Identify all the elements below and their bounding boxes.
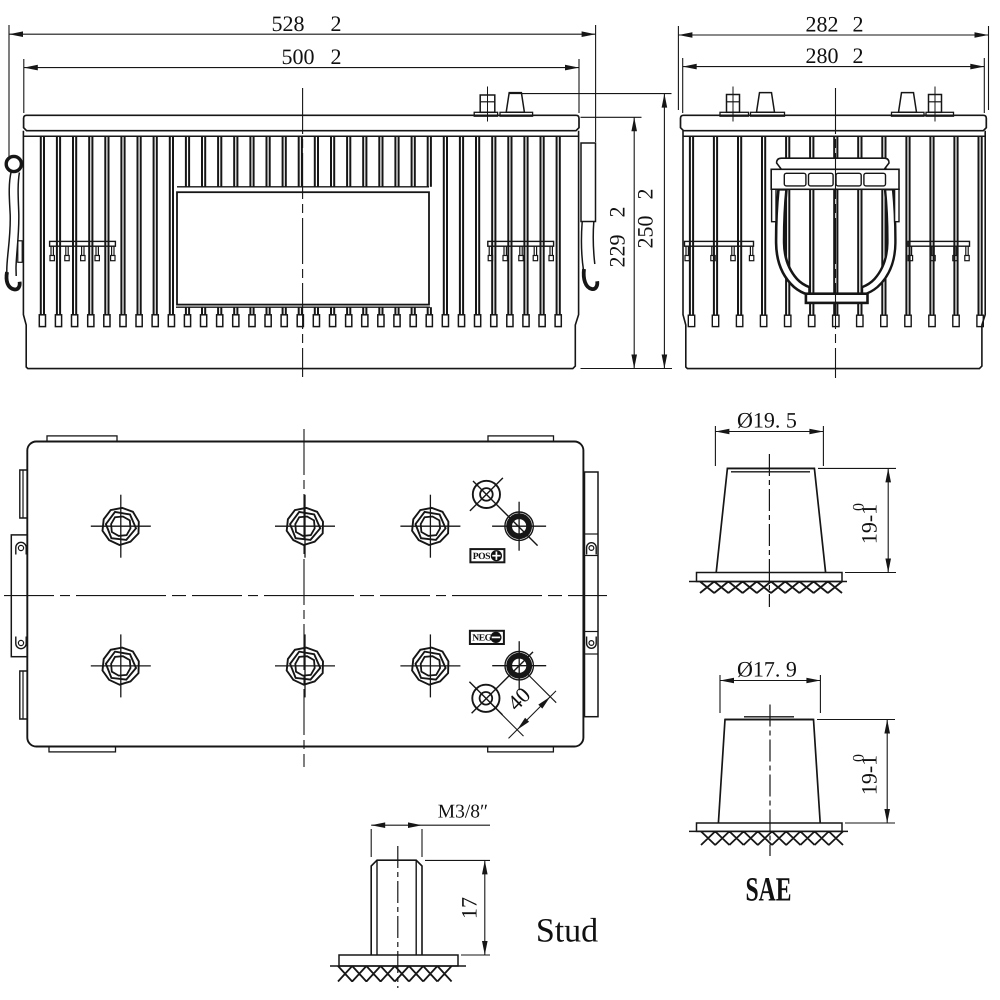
svg-text:2: 2 [853, 43, 864, 68]
svg-text:2: 2 [633, 189, 658, 200]
svg-text:280: 280 [806, 43, 839, 68]
svg-text:Ø19. 5: Ø19. 5 [737, 408, 797, 433]
svg-text:NEG: NEG [472, 633, 492, 644]
svg-text:528: 528 [272, 11, 305, 36]
svg-text:282: 282 [806, 11, 839, 36]
svg-text:M3/8″: M3/8″ [438, 802, 488, 823]
svg-text:2: 2 [605, 207, 630, 218]
svg-text:Ø17. 9: Ø17. 9 [737, 657, 797, 682]
svg-text:0: 0 [851, 503, 868, 511]
svg-text:17: 17 [457, 897, 482, 919]
svg-text:SAE: SAE [746, 872, 792, 909]
svg-text:2: 2 [331, 11, 342, 36]
svg-text:Stud: Stud [536, 913, 598, 950]
svg-text:POS: POS [473, 551, 490, 562]
svg-text:250: 250 [633, 216, 658, 249]
svg-text:500: 500 [282, 44, 315, 69]
svg-text:2: 2 [853, 11, 864, 36]
svg-text:229: 229 [605, 235, 630, 268]
svg-text:2: 2 [331, 44, 342, 69]
svg-text:0: 0 [851, 754, 868, 762]
